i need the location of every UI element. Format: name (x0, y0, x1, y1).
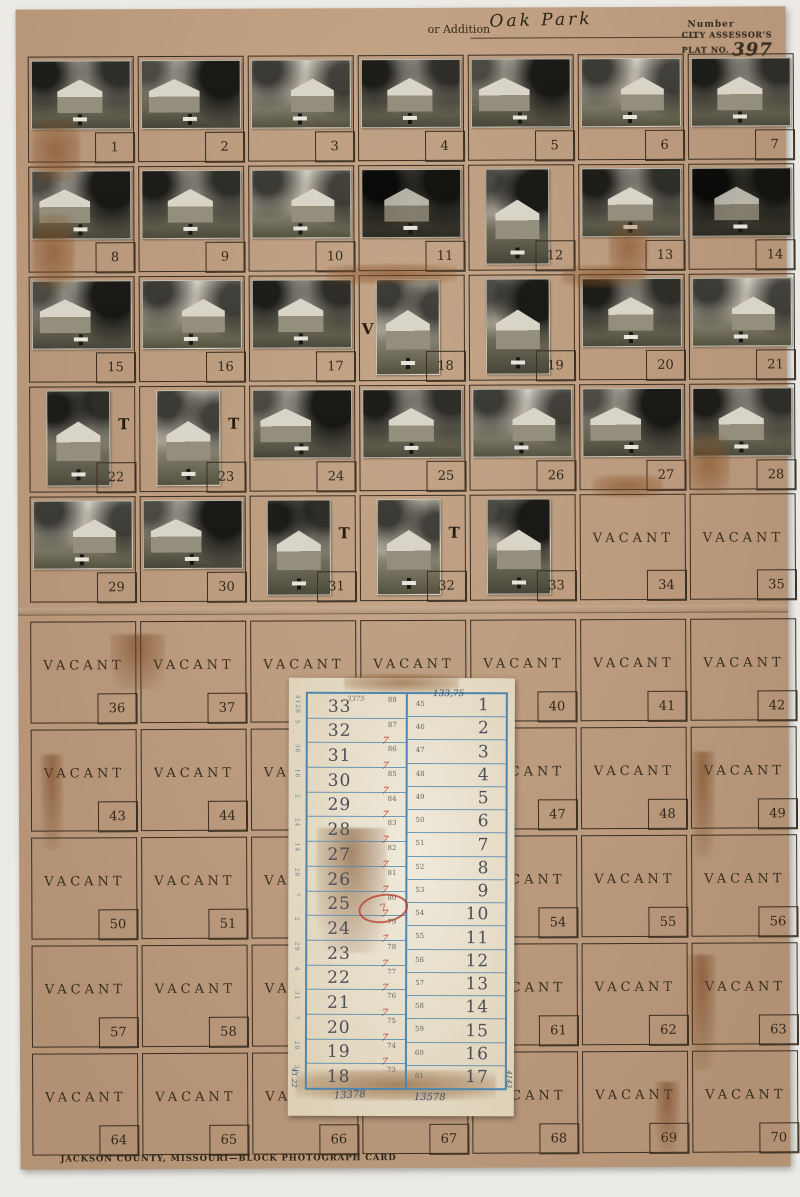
ledger-row-lot-17: 1761 (407, 1066, 505, 1088)
house-shape (386, 530, 431, 570)
cell-number: 4 (425, 130, 465, 161)
surveyor-figure (188, 224, 192, 235)
lot-number: 19 (327, 1042, 351, 1062)
vacant-label: VACANT (704, 763, 785, 778)
grid-cell-10: 10 (248, 165, 354, 271)
cell-number: 21 (755, 349, 795, 380)
cell-number: 19 (535, 350, 575, 381)
ledger-row-lot-6: 650 (408, 810, 506, 833)
grid-cell-65: VACANT65 (142, 1053, 248, 1155)
house-photo (471, 58, 571, 127)
sub-figure: 61 (415, 1072, 424, 1080)
grid-cell-51: VACANT51 (141, 837, 247, 939)
house-shape (151, 519, 202, 553)
house-photo (362, 389, 462, 458)
sub-figure: 84 (388, 795, 397, 803)
grid-cell-43: VACANT43 (31, 729, 137, 831)
grid-cell-69: VACANT69 (582, 1051, 688, 1153)
edge-figure: 2 (294, 793, 301, 798)
surveyor-figure (407, 578, 411, 589)
house-shape (621, 77, 664, 111)
edge-figure: 14 (293, 843, 300, 853)
grid-cell-70: VACANT70 (692, 1050, 798, 1152)
cell-number: 20 (645, 349, 685, 380)
cell-number: 8 (95, 242, 135, 273)
edge-figure: 4143 (505, 1070, 513, 1088)
cell-number: 62 (648, 1014, 688, 1045)
house-shape (149, 79, 200, 113)
ledger-row-lot-20: 207577 (307, 1015, 405, 1040)
ledger-row-lot-9: 953 (407, 880, 505, 903)
sub-figure: 83 (388, 819, 397, 827)
house-shape (714, 187, 759, 221)
grid-cell-63: VACANT63 (692, 942, 798, 1044)
cell-number: 28 (756, 459, 796, 490)
house-photo (141, 170, 241, 239)
grid-cell-30: 30 (140, 496, 246, 602)
grid-cell-19: 19 (469, 274, 575, 380)
cell-number: 57 (98, 1017, 138, 1048)
cell-number: 51 (208, 908, 248, 939)
grid-cell-44: VACANT44 (141, 729, 247, 831)
cell-number: 7 (755, 129, 795, 160)
lot-number: 18 (327, 1067, 351, 1087)
surveyor-figure (298, 113, 302, 124)
ledger-row-lot-16: 1660 (407, 1043, 505, 1066)
cell-number: 14 (755, 239, 795, 270)
cell-number: 11 (425, 240, 465, 271)
photo-grid-top: 1234567891011121314151617V18192021T22T23… (28, 53, 796, 602)
grid-cell-29: 29 (30, 496, 136, 602)
card-caption: JACKSON COUNTY, MISSOURI—BLOCK PHOTOGRAP… (60, 1153, 396, 1164)
block-photograph-card: or Addition Oak Park Number CITY ASSESSO… (15, 6, 790, 1169)
vacant-label: VACANT (154, 874, 235, 889)
pencil-annotation: T (118, 415, 129, 433)
cell-number: 61 (538, 1015, 578, 1046)
vacant-label: VACANT (703, 655, 784, 670)
sub-figure: 85 (388, 770, 397, 778)
grid-cell-22: T22 (29, 386, 135, 492)
house-photo (691, 167, 791, 236)
grid-cell-62: VACANT62 (582, 943, 688, 1045)
house-photo (251, 59, 351, 128)
house-photo (32, 280, 132, 349)
ledger-right-column: 1452463474485496507518529531054115512561… (405, 694, 506, 1088)
ledger-row-lot-21: 2176731 (307, 990, 405, 1015)
lot-number: 4 (478, 765, 490, 785)
house-shape (276, 530, 321, 570)
cell-number: 35 (756, 569, 796, 600)
house-photo (31, 60, 131, 129)
lot-number: 14 (465, 997, 489, 1017)
surveyor-figure (738, 111, 742, 122)
ledger-row-lot-30: 3085716 (308, 768, 406, 793)
sub-figure: 48 (416, 770, 425, 778)
grid-cell-56: VACANT56 (691, 834, 797, 936)
cell-number: 48 (647, 798, 687, 829)
lot-number: 6 (478, 812, 490, 832)
edge-figure: 24 (294, 818, 301, 828)
grid-cell-13: 13 (578, 164, 684, 270)
lot-number: 22 (327, 968, 351, 988)
vacant-label: VACANT (154, 766, 235, 781)
sub-figure: 82 (388, 844, 397, 852)
cell-number: 63 (758, 1014, 798, 1045)
lot-number: 10 (466, 905, 490, 925)
ledger-row-lot-3: 347 (408, 740, 506, 763)
ledger-row-lot-23: 2378729 (307, 941, 405, 966)
cell-number: 1 (95, 132, 135, 163)
grid-cell-6: 6 (578, 54, 684, 160)
cell-number: 9 (205, 241, 245, 272)
grid-cell-25: 25 (359, 385, 465, 491)
vacant-label: VACANT (703, 530, 784, 545)
vacant-label: VACANT (373, 657, 454, 672)
lot-number: 24 (327, 919, 351, 939)
edge-figure: 2 (293, 917, 300, 922)
ledger-left-column: 3388412832877531867363085716298472288372… (307, 694, 406, 1088)
house-shape (260, 408, 311, 442)
vacant-label: VACANT (594, 764, 675, 779)
grid-cell-4: 4 (358, 55, 464, 161)
sub-figure: 88 (388, 696, 397, 704)
cell-number: 31 (316, 571, 356, 602)
grid-cell-12: 12 (468, 164, 574, 270)
or-addition-label: or Addition (428, 23, 491, 36)
ledger-row-lot-13: 1357 (407, 973, 505, 996)
ledger-row-lot-22: 227774 (307, 965, 405, 990)
house-shape (40, 299, 91, 333)
sub-figure: 47 (416, 747, 425, 755)
house-photo (692, 277, 792, 346)
house-shape (732, 296, 775, 330)
house-photo (691, 57, 791, 126)
grid-cell-37: VACANT37 (140, 621, 246, 723)
ledger-row-lot-15: 1559 (407, 1019, 505, 1042)
house-photo (31, 170, 131, 239)
lot-number: 31 (328, 746, 352, 766)
cell-number: 18 (425, 350, 465, 381)
lot-number: 26 (327, 869, 351, 889)
house-photo (692, 387, 792, 456)
surveyor-figure (406, 358, 410, 369)
grid-cell-7: 7 (688, 53, 794, 159)
vacant-label: VACANT (44, 874, 125, 889)
cell-number: 5 (535, 130, 575, 161)
house-shape (495, 309, 540, 349)
vacant-label: VACANT (45, 982, 126, 997)
addition-underline (471, 37, 699, 39)
house-photo (141, 60, 241, 129)
cell-number: 64 (99, 1125, 139, 1156)
cell-number: 50 (98, 909, 138, 940)
grid-cell-20: 20 (579, 274, 685, 380)
lot-number: 17 (465, 1067, 489, 1087)
ink-figure: 13578 (414, 1092, 446, 1103)
grid-cell-8: 8 (28, 166, 134, 272)
surveyor-figure (629, 442, 633, 453)
grid-cell-18: V18 (359, 275, 465, 381)
surveyor-figure (409, 443, 413, 454)
house-photo (361, 169, 461, 238)
sub-figure: 46 (416, 723, 425, 731)
house-shape (291, 78, 334, 112)
grid-cell-33: 33 (470, 494, 576, 600)
house-shape (291, 188, 334, 222)
ledger-row-lot-8: 852 (407, 857, 505, 880)
house-shape (387, 78, 432, 112)
ledger-row-lot-27: 2782714 (307, 842, 405, 867)
grid-cell-16: 16 (139, 276, 245, 382)
grid-cell-35: VACANT35 (690, 493, 796, 599)
cell-number: 37 (207, 692, 247, 723)
cell-number: 29 (96, 572, 136, 603)
surveyor-figure (408, 113, 412, 124)
ledger-row-lot-18: 187330 (307, 1064, 405, 1088)
edge-figure: 29 (293, 942, 300, 952)
edge-figure: 36 (294, 744, 301, 754)
ledger-row-lot-19: 1974728 (307, 1039, 405, 1064)
house-shape (590, 407, 641, 441)
house-shape (384, 188, 429, 222)
lot-ledger-card: 3388412832877531867363085716298472288372… (288, 678, 515, 1117)
house-photo (252, 389, 352, 458)
house-shape (717, 77, 762, 111)
cell-number: 17 (315, 351, 355, 382)
house-photo (581, 168, 681, 237)
sub-figure: 77 (387, 968, 396, 976)
house-photo (582, 278, 682, 347)
cell-number: 69 (649, 1122, 689, 1153)
ledger-row-lot-4: 448 (408, 764, 506, 787)
lot-number: 7 (478, 835, 490, 855)
sub-figure: 50 (416, 816, 425, 824)
pencil-annotation: T (339, 524, 350, 542)
vacant-label: VACANT (594, 872, 675, 887)
cell-number: 49 (757, 798, 797, 829)
surveyor-figure (190, 554, 194, 565)
pencil-figure: 3375 (347, 695, 365, 703)
surveyor-figure (78, 114, 82, 125)
surveyor-figure (516, 358, 520, 369)
house-shape (496, 529, 541, 569)
cell-number: 34 (646, 569, 686, 600)
grid-cell-49: VACANT49 (691, 726, 797, 828)
house-shape (39, 189, 90, 223)
grid-cell-5: 5 (468, 54, 574, 160)
surveyor-figure (408, 223, 412, 234)
cell-number: 10 (315, 241, 355, 272)
lot-number: 23 (327, 943, 351, 963)
grid-cell-31: T31 (250, 495, 356, 601)
vacant-label: VACANT (704, 871, 785, 886)
lot-number: 28 (327, 820, 351, 840)
house-shape (166, 421, 211, 461)
sub-figure: 49 (416, 793, 425, 801)
cell-number: 66 (319, 1124, 359, 1155)
grid-cell-27: 27 (579, 384, 685, 490)
cell-number: 54 (538, 907, 578, 938)
vacant-label: VACANT (595, 980, 676, 995)
number-label: Number (688, 20, 735, 30)
surveyor-figure (188, 114, 192, 125)
house-photo (251, 169, 351, 238)
cell-number: 41 (647, 690, 687, 721)
house-photo (361, 59, 461, 128)
cell-number: 36 (97, 693, 137, 724)
surveyor-figure (738, 221, 742, 232)
cell-number: 6 (645, 129, 685, 160)
edge-figure: 16 (294, 769, 301, 779)
lot-number: 16 (465, 1044, 489, 1064)
grid-cell-2: 2 (138, 56, 244, 162)
house-photo (472, 388, 572, 457)
sub-figure: 53 (415, 886, 424, 894)
edge-figure: 26 (293, 868, 300, 878)
grid-cell-64: VACANT64 (32, 1053, 138, 1155)
cell-number: 43 (97, 801, 137, 832)
grid-cell-41: VACANT41 (580, 619, 686, 721)
grid-cell-57: VACANT57 (32, 945, 138, 1047)
house-shape (479, 78, 530, 112)
edge-figure: 7 (293, 1016, 300, 1021)
grid-cell-11: 11 (358, 165, 464, 271)
cell-number: 15 (95, 352, 135, 383)
vacant-label: VACANT (593, 656, 674, 671)
sub-figure: 75 (387, 1017, 396, 1025)
grid-cell-23: T23 (139, 386, 245, 492)
lot-number: 5 (478, 788, 490, 808)
pencil-annotation: T (449, 524, 460, 542)
vacant-label: VACANT (153, 658, 234, 673)
lot-number: 9 (478, 881, 490, 901)
sub-figure: 51 (415, 839, 424, 847)
cell-number: 58 (208, 1016, 248, 1047)
surveyor-figure (628, 112, 632, 123)
house-shape (57, 79, 102, 113)
card-fold-seam (18, 604, 788, 615)
cell-number: 67 (429, 1123, 469, 1154)
grid-cell-3: 3 (248, 55, 354, 161)
cell-number: 47 (537, 799, 577, 830)
vacant-label: VACANT (155, 1090, 236, 1105)
surveyor-figure (78, 224, 82, 235)
surveyor-figure (629, 332, 633, 343)
cell-number: 68 (539, 1123, 579, 1154)
house-shape (719, 407, 764, 441)
cell-number: 32 (426, 570, 466, 601)
house-shape (512, 407, 555, 441)
surveyor-figure (519, 442, 523, 453)
cell-number: 44 (207, 800, 247, 831)
cell-number: 27 (646, 459, 686, 490)
surveyor-figure (739, 331, 743, 342)
grid-cell-24: 24 (249, 385, 355, 491)
house-shape (495, 199, 540, 239)
lot-number: 25 (327, 894, 351, 914)
ledger-row-lot-14: 1458 (407, 996, 505, 1019)
sub-figure: 87 (388, 721, 397, 729)
house-photo (581, 58, 681, 127)
vacant-label: VACANT (483, 656, 564, 671)
cell-number: 70 (759, 1122, 799, 1153)
grid-cell-1: 1 (28, 56, 134, 162)
surveyor-figure (628, 222, 632, 233)
lot-number: 29 (328, 795, 352, 815)
cell-number: 23 (206, 461, 246, 492)
cell-number: 55 (648, 906, 688, 937)
surveyor-figure (516, 248, 520, 259)
grid-cell-26: 26 (469, 384, 575, 490)
cell-number: 26 (536, 460, 576, 491)
ledger-row-lot-11: 1155 (407, 926, 505, 949)
vacant-label: VACANT (43, 658, 124, 673)
lot-number: 15 (465, 1021, 489, 1041)
lot-number: 3 (478, 742, 490, 762)
sub-figure: 45 (416, 700, 425, 708)
house-photo (252, 279, 352, 348)
house-shape (608, 187, 653, 221)
pencil-annotation: V (362, 320, 374, 338)
ledger-row-lot-2: 246 (408, 717, 506, 740)
ledger-row-lot-12: 1256 (407, 950, 505, 973)
cell-number: 24 (316, 461, 356, 492)
sub-figure: 56 (415, 956, 424, 964)
cell-number: 40 (537, 691, 577, 722)
vacant-label: VACANT (263, 657, 344, 672)
vacant-label: VACANT (593, 531, 674, 546)
grid-cell-28: 28 (689, 383, 795, 489)
grid-cell-36: VACANT36 (30, 621, 136, 723)
cell-number: 13 (645, 239, 685, 270)
vacant-label: VACANT (705, 1087, 786, 1102)
lot-number: 1 (478, 695, 490, 715)
house-shape (385, 310, 430, 350)
edge-figure: 4128 (294, 695, 301, 714)
sub-figure: 78 (387, 943, 396, 951)
sub-figure: 86 (388, 745, 397, 753)
surveyor-figure (79, 334, 83, 345)
lot-number: 32 (328, 721, 352, 741)
grid-cell-48: VACANT48 (581, 727, 687, 829)
vacant-label: VACANT (45, 1090, 126, 1105)
ink-figure: 133,75 (433, 689, 465, 699)
cell-number: 3 (315, 131, 355, 162)
cell-number: 65 (209, 1124, 249, 1155)
grid-cell-42: VACANT42 (690, 618, 796, 720)
cell-number: 25 (426, 460, 466, 491)
house-photo (143, 500, 243, 569)
ledger-row-lot-31: 3186736 (308, 743, 406, 768)
cell-number: 22 (96, 462, 136, 493)
ledger-row-lot-26: 2681726 (307, 867, 405, 892)
cell-number: 56 (758, 906, 798, 937)
sub-figure: 52 (415, 863, 424, 871)
house-shape (278, 298, 323, 332)
ledger-row-lot-32: 328775 (308, 718, 406, 743)
lot-number: 11 (466, 928, 490, 948)
ledger-row-lot-7: 751 (407, 833, 505, 856)
vacant-label: VACANT (595, 1088, 676, 1103)
lot-number: 27 (327, 845, 351, 865)
house-photo (582, 388, 682, 457)
house-shape (56, 421, 101, 461)
lot-number: 12 (466, 951, 490, 971)
sub-figure: 74 (387, 1042, 396, 1050)
lot-number: 20 (327, 1017, 351, 1037)
vacant-label: VACANT (44, 766, 125, 781)
cell-number: 33 (536, 570, 576, 601)
